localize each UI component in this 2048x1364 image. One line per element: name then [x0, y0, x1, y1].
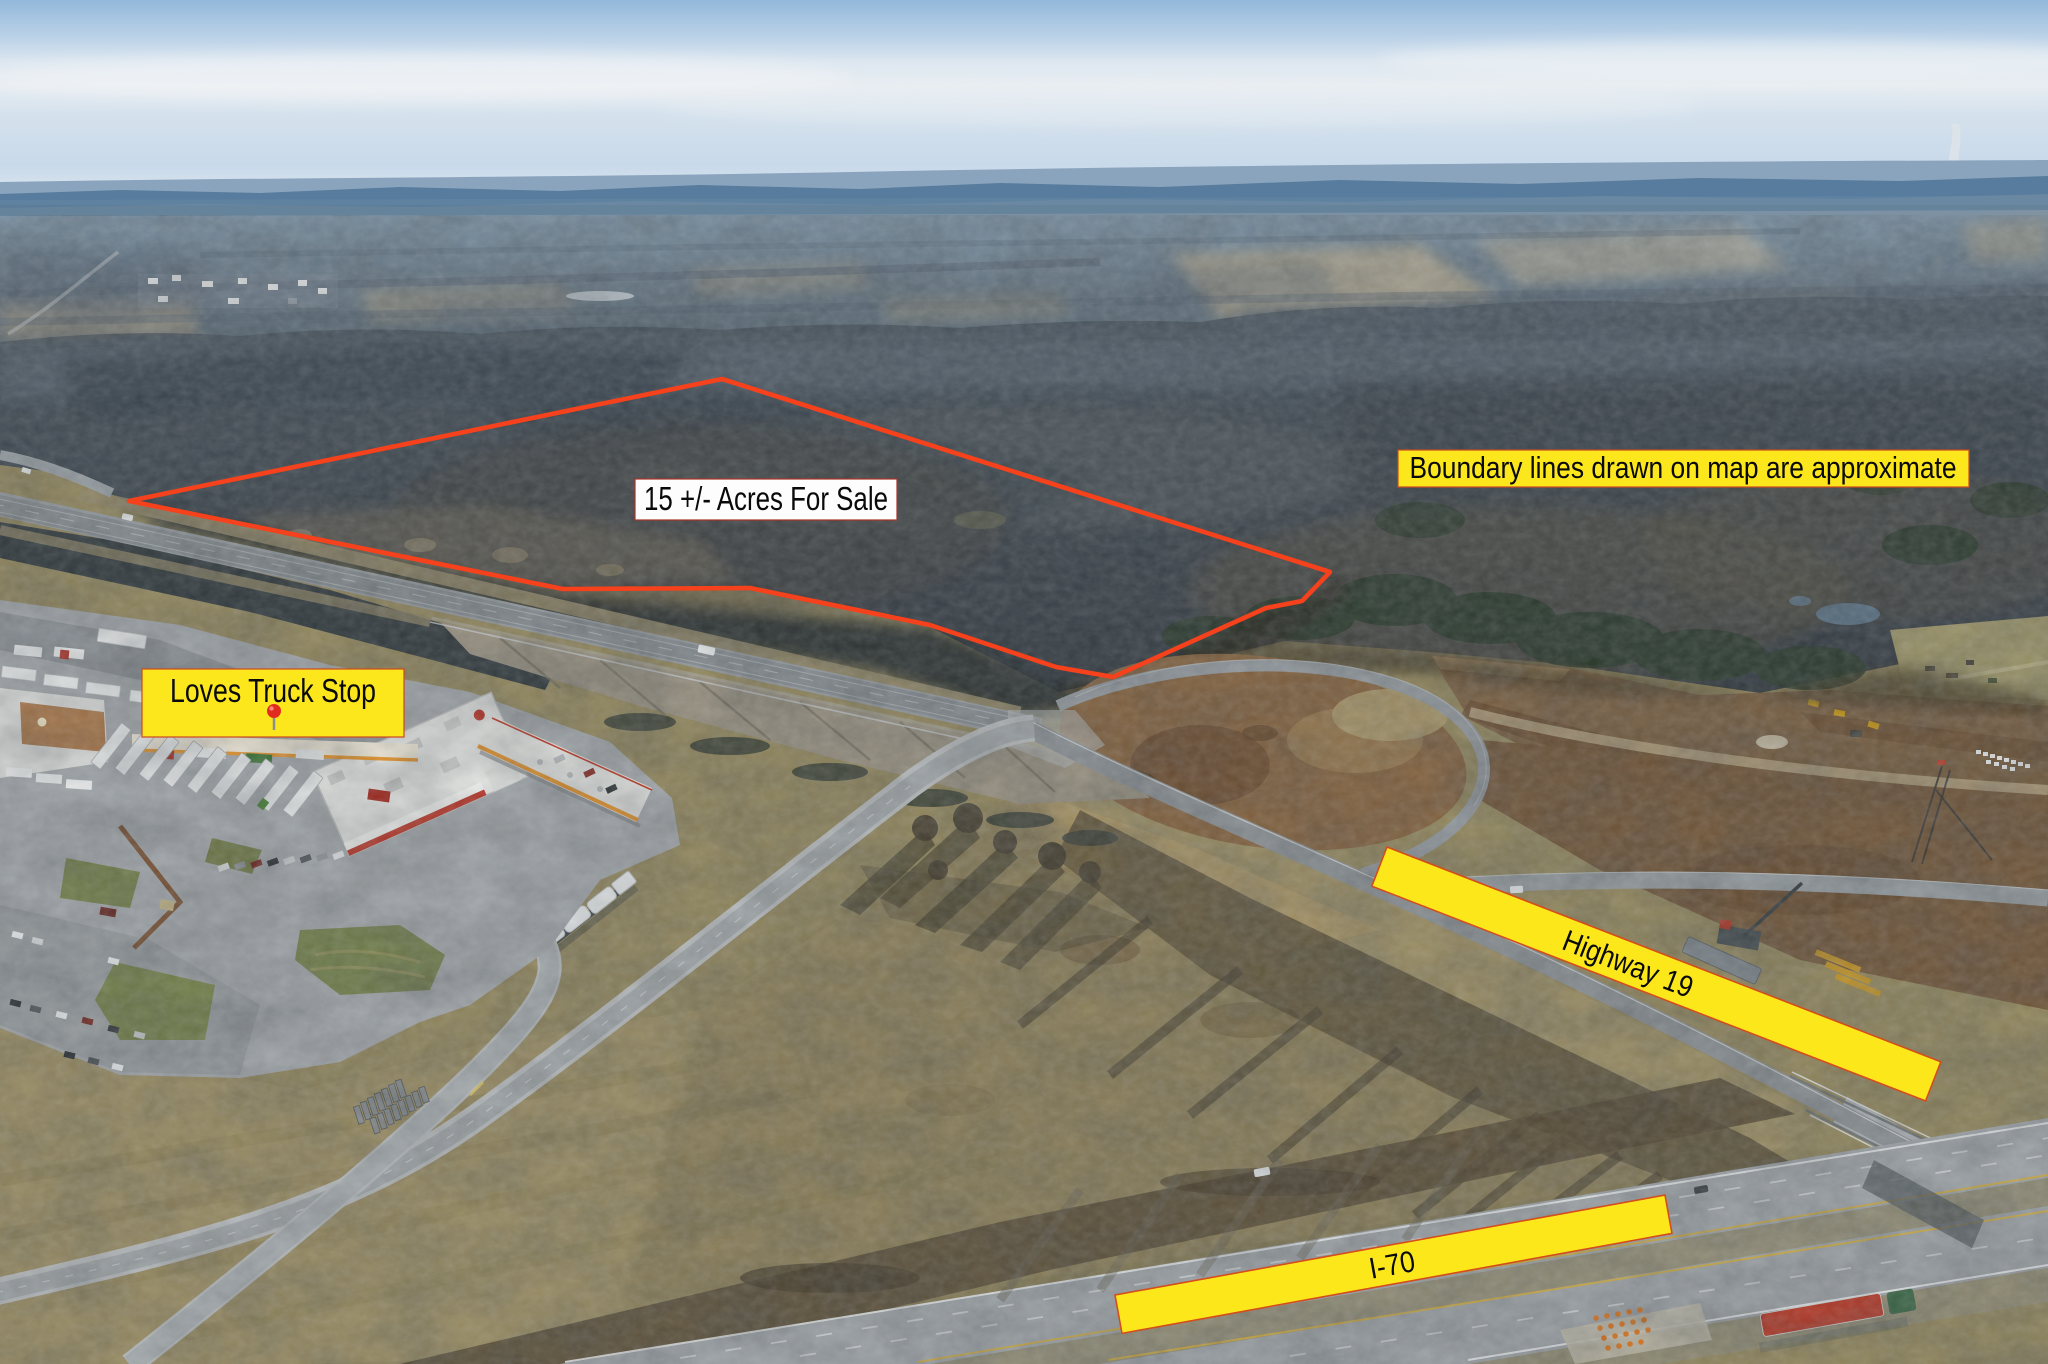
- svg-text:15 +/- Acres For Sale: 15 +/- Acres For Sale: [644, 480, 888, 517]
- svg-text:Loves Truck Stop: Loves Truck Stop: [170, 672, 376, 709]
- svg-text:Boundary lines drawn on map ar: Boundary lines drawn on map are approxim…: [1410, 450, 1957, 485]
